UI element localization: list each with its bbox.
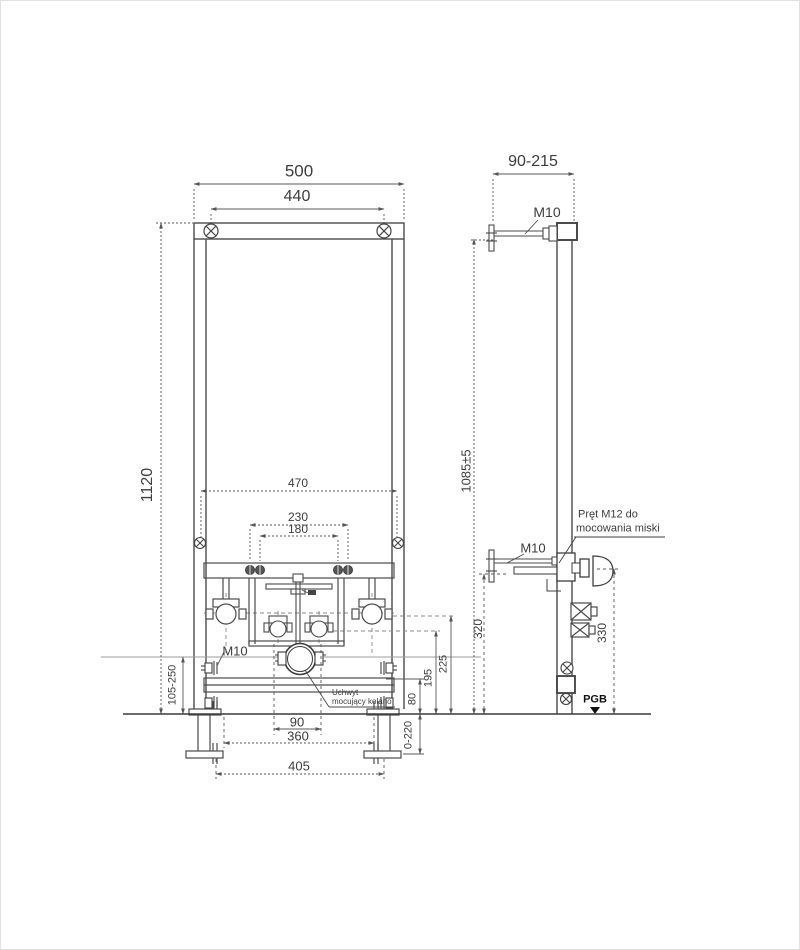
dim-label-195: 195 (424, 669, 435, 687)
front-view-frame (194, 223, 404, 709)
drawing-linework (1, 1, 800, 950)
dim-label-90: 90 (290, 716, 304, 729)
dim-label-180: 180 (288, 523, 308, 535)
dim-label-90-215: 90-215 (508, 154, 558, 170)
dim-label-405: 405 (288, 760, 310, 773)
clamp-note-line2: mocujący kolano (332, 698, 392, 706)
dim-label-440: 440 (284, 189, 311, 205)
dim-label-105-250: 105-250 (168, 665, 179, 705)
frame-side-bolts (195, 538, 404, 549)
middle-fittings (264, 616, 333, 637)
side-top-anchor (486, 220, 557, 251)
pgb-direction-arrow (590, 707, 600, 714)
water-supply-fittings (206, 599, 392, 624)
rod-note-line2: mocowania miski (576, 524, 660, 535)
dim-label-320: 320 (472, 619, 484, 639)
bolt-label-m10-front: M10 (222, 645, 247, 658)
side-valve-fittings (571, 603, 597, 637)
dim-label-0-220: 0-220 (404, 721, 415, 749)
dim-label-470: 470 (288, 477, 308, 489)
dim-label-330: 330 (596, 623, 608, 643)
dim-label-225: 225 (439, 655, 450, 673)
rod-note-line1: Pręt M12 do (578, 510, 638, 521)
technical-drawing-canvas: 500 440 90-215 M10 1120 1085±5 470 230 1… (0, 0, 800, 950)
clamp-note-line1: Uchwyt (332, 689, 358, 697)
elbow-clamp (275, 644, 326, 675)
side-view-column (557, 223, 577, 714)
frame-top-bolts (204, 224, 391, 238)
dim-label-500: 500 (285, 163, 313, 180)
dim-label-360: 360 (287, 730, 309, 743)
dim-label-80: 80 (408, 693, 419, 705)
dim-label-1120: 1120 (140, 468, 156, 502)
brand-mark-pgb: PGB (583, 695, 607, 706)
bowl-mounting-rod-m12 (547, 537, 665, 591)
bolt-label-m10-top: M10 (533, 205, 560, 219)
bolt-label-m10-side: M10 (520, 542, 545, 555)
dim-label-1085: 1085±5 (460, 449, 473, 492)
